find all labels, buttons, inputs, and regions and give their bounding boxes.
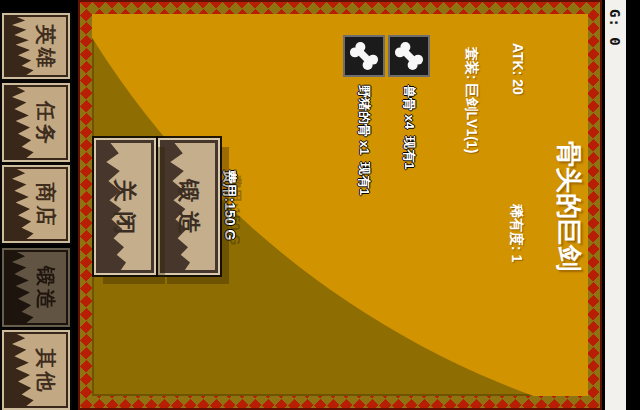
material-row: 野猪的骨 x1 现有1 (343, 35, 385, 196)
item-title: 骨头的巨剑 (551, 141, 586, 271)
sidebar-item-other[interactable]: 其他 (2, 330, 70, 410)
material-label: 兽骨 x4 现有1 (400, 85, 418, 170)
sidebar-item-label: 锻造 (32, 250, 59, 325)
bone-icon (388, 35, 430, 77)
material-label: 野猪的骨 x1 现有1 (355, 85, 373, 196)
close-button[interactable]: 关闭 (94, 138, 156, 275)
atk-stat: ATK: 20 (510, 43, 526, 95)
forge-button[interactable]: 锻造 (158, 138, 220, 275)
forge-panel: 骨头的巨剑 ATK: 20 稀有度: 1 套装: 巨剑LV1(1) (78, 0, 602, 410)
sidebar-item-label: 英雄 (32, 15, 59, 77)
forge-panel-content: 骨头的巨剑 ATK: 20 稀有度: 1 套装: 巨剑LV1(1) (92, 14, 588, 396)
rarity-stat: 稀有度: 1 (507, 204, 525, 262)
status-bar: G: 0 (605, 0, 626, 410)
forge-button-label: 锻造 (160, 140, 218, 273)
rotated-game-viewport: G: 0 骨头的巨剑 ATK: 20 稀有度: 1 套装: 巨剑LV1(1) (0, 0, 640, 410)
material-row: 兽骨 x4 现有1 (388, 35, 430, 170)
sidebar-item-shop[interactable]: 商店 (2, 165, 70, 243)
sidebar-item-quest[interactable]: 任务 (2, 83, 70, 162)
set-stat: 套装: 巨剑LV1(1) (462, 47, 480, 153)
sidebar-item-label: 其他 (32, 332, 59, 408)
cost-label: 费用:150 G (220, 14, 238, 396)
sidebar-item-label: 商店 (32, 167, 59, 241)
game-screen: G: 0 骨头的巨剑 ATK: 20 稀有度: 1 套装: 巨剑LV1(1) (0, 0, 640, 410)
close-button-label: 关闭 (96, 140, 154, 273)
sidebar-item-label: 任务 (32, 85, 59, 160)
sidebar-item-hero[interactable]: 英雄 (2, 13, 70, 79)
sidebar-tabs: 英雄 任务 商店 锻造 其他 (0, 0, 72, 410)
gold-counter: G: 0 (608, 9, 624, 47)
sidebar-item-forge[interactable]: 锻造 (2, 248, 70, 327)
bone-icon (343, 35, 385, 77)
